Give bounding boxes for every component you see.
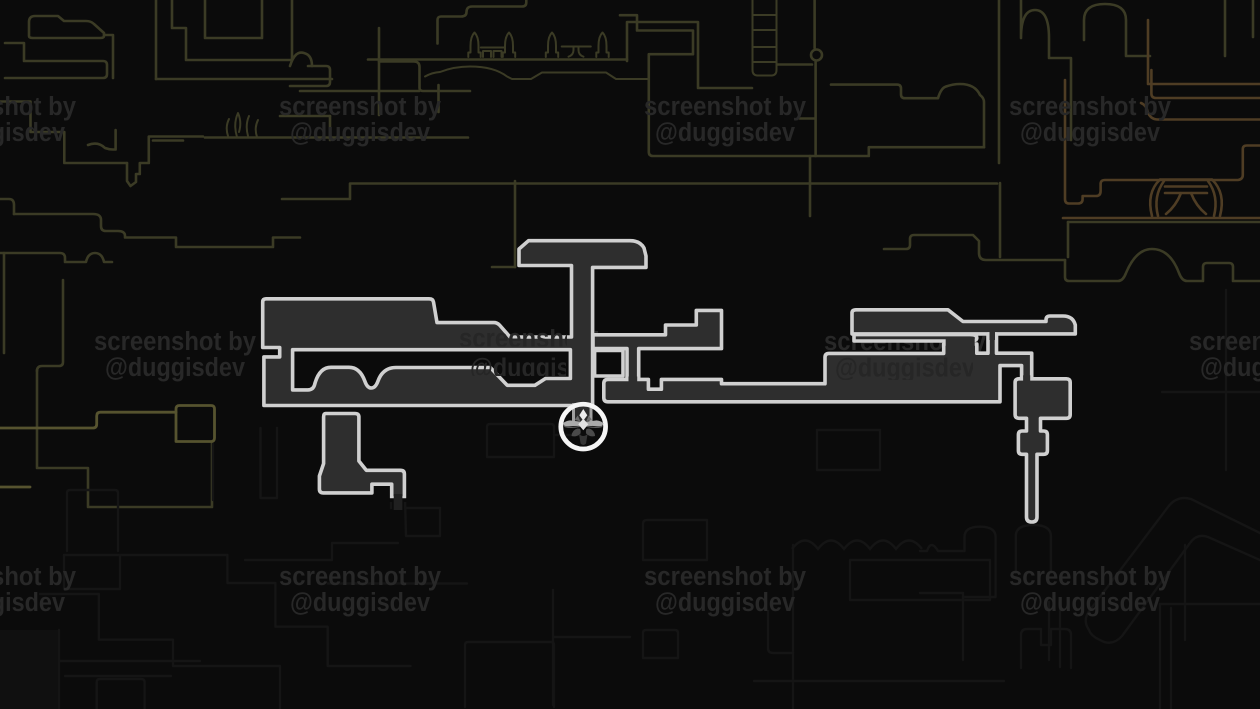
svg-text:@duggisdev: @duggisdev	[655, 119, 796, 147]
svg-text:@duggisdev: @duggisdev	[105, 354, 246, 382]
svg-text:screenshot by: screenshot by	[1189, 328, 1260, 356]
svg-text:@duggisdev: @duggisdev	[1020, 119, 1161, 147]
svg-text:@duggisdev: @duggisdev	[835, 355, 976, 383]
svg-text:screenshot by: screenshot by	[1009, 563, 1172, 591]
svg-text:@duggisdev: @duggisdev	[0, 589, 66, 617]
svg-text:@duggisdev: @duggisdev	[655, 589, 796, 617]
svg-text:screenshot by: screenshot by	[1009, 93, 1172, 121]
svg-text:screenshot by: screenshot by	[644, 563, 807, 591]
svg-text:screenshot by: screenshot by	[0, 563, 77, 591]
svg-text:screenshot by: screenshot by	[0, 93, 77, 121]
svg-text:screenshot by: screenshot by	[279, 563, 442, 591]
svg-text:@duggisdev: @duggisdev	[290, 119, 431, 147]
svg-text:@duggisdev: @duggisdev	[290, 589, 431, 617]
svg-text:@duggisdev: @duggisdev	[1200, 354, 1260, 382]
svg-text:@duggisdev: @duggisdev	[0, 119, 66, 147]
svg-text:@duggisdev: @duggisdev	[1020, 589, 1161, 617]
svg-text:screenshot by: screenshot by	[94, 328, 257, 356]
svg-text:screenshot by: screenshot by	[644, 93, 807, 121]
svg-text:screenshot by: screenshot by	[279, 93, 442, 121]
